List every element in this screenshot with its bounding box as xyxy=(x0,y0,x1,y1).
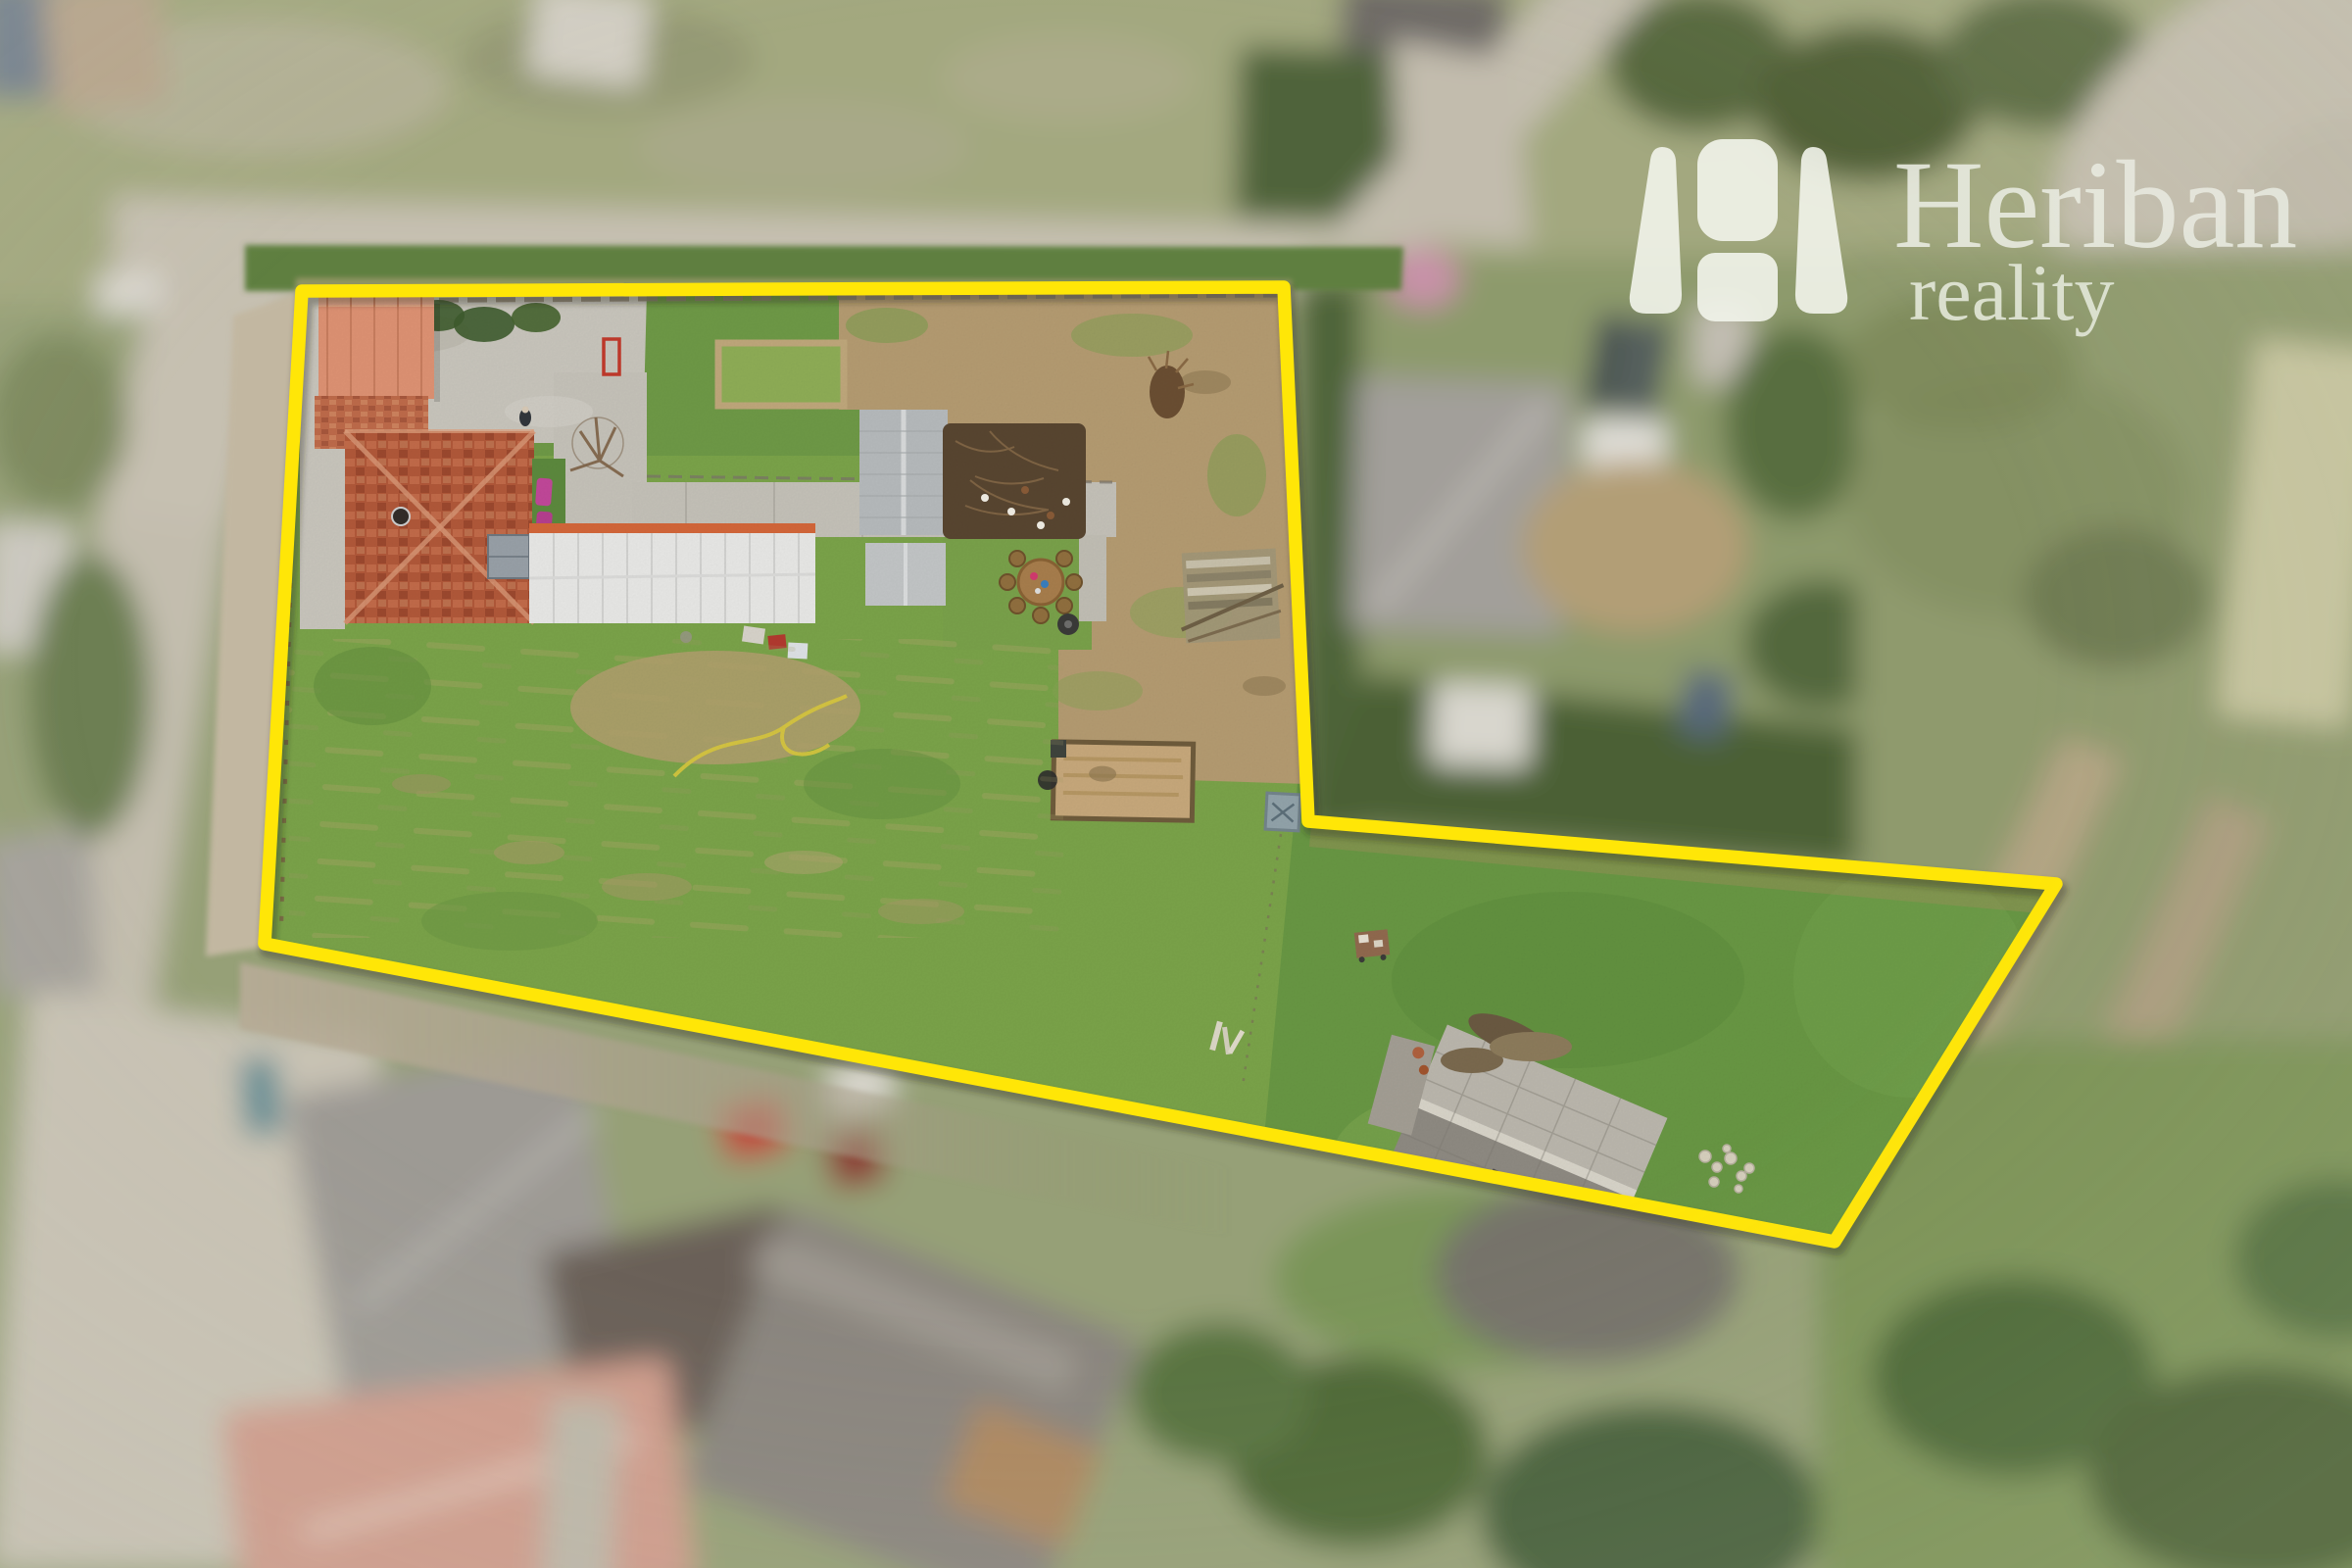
aerial-photo: Heriban reality xyxy=(0,0,2352,1568)
vignette-overlay xyxy=(0,0,2352,1568)
aerial-photo-stage: Heriban reality xyxy=(0,0,2352,1568)
